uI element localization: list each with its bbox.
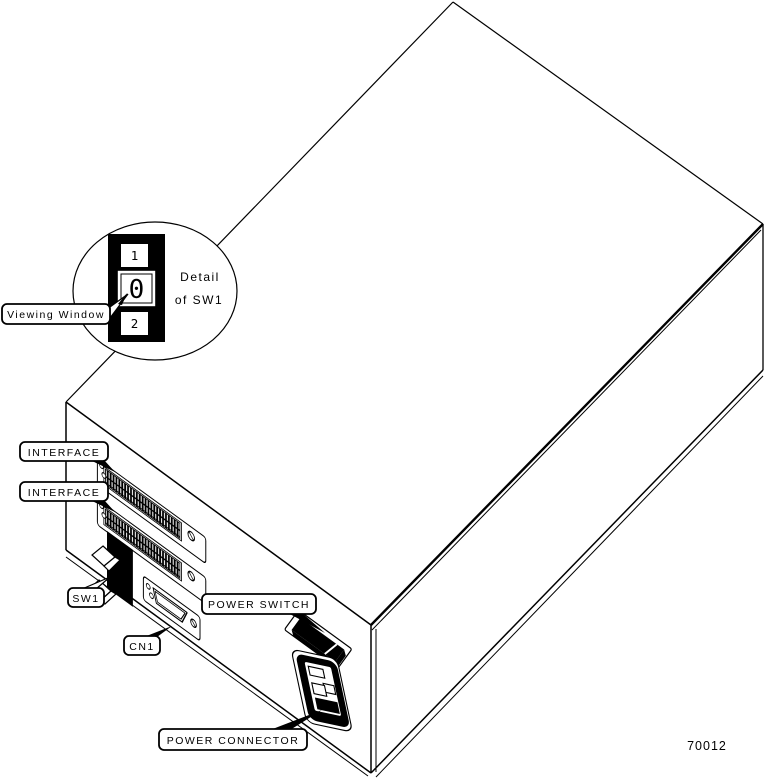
- right-bottom-edge: [371, 370, 763, 773]
- label-sw1: SW1: [72, 593, 99, 605]
- right-face-top-edge: [371, 224, 763, 625]
- label-interface-top: INTERFACE: [28, 447, 100, 459]
- top-right-edge: [453, 2, 763, 224]
- figure-rear-view-diagram: 1 0 2 Detail of SW1 Viewing Window INTER…: [0, 0, 764, 778]
- detail-caption-line1: Detail: [180, 270, 220, 284]
- detail-callout: 1 0 2 Detail of SW1: [73, 222, 237, 360]
- label-interface-bottom: INTERFACE: [28, 487, 100, 499]
- switch-position-bottom: 2: [131, 316, 139, 331]
- chassis-outline: [66, 2, 763, 777]
- figure-number: 70012: [687, 739, 727, 753]
- right-face-top-edge-inner: [372, 230, 761, 630]
- diagram-canvas: 1 0 2 Detail of SW1 Viewing Window INTER…: [0, 0, 764, 778]
- label-cn1: CN1: [129, 641, 155, 653]
- detail-caption-line2: of SW1: [175, 293, 223, 307]
- label-viewing-window: Viewing Window: [7, 309, 105, 321]
- right-bottom-base-edge: [376, 376, 763, 777]
- switch-position-selected: 0: [129, 275, 145, 305]
- switch-position-top: 1: [131, 248, 139, 263]
- label-power-connector: POWER CONNECTOR: [167, 735, 300, 747]
- label-power-switch: POWER SWITCH: [208, 599, 310, 611]
